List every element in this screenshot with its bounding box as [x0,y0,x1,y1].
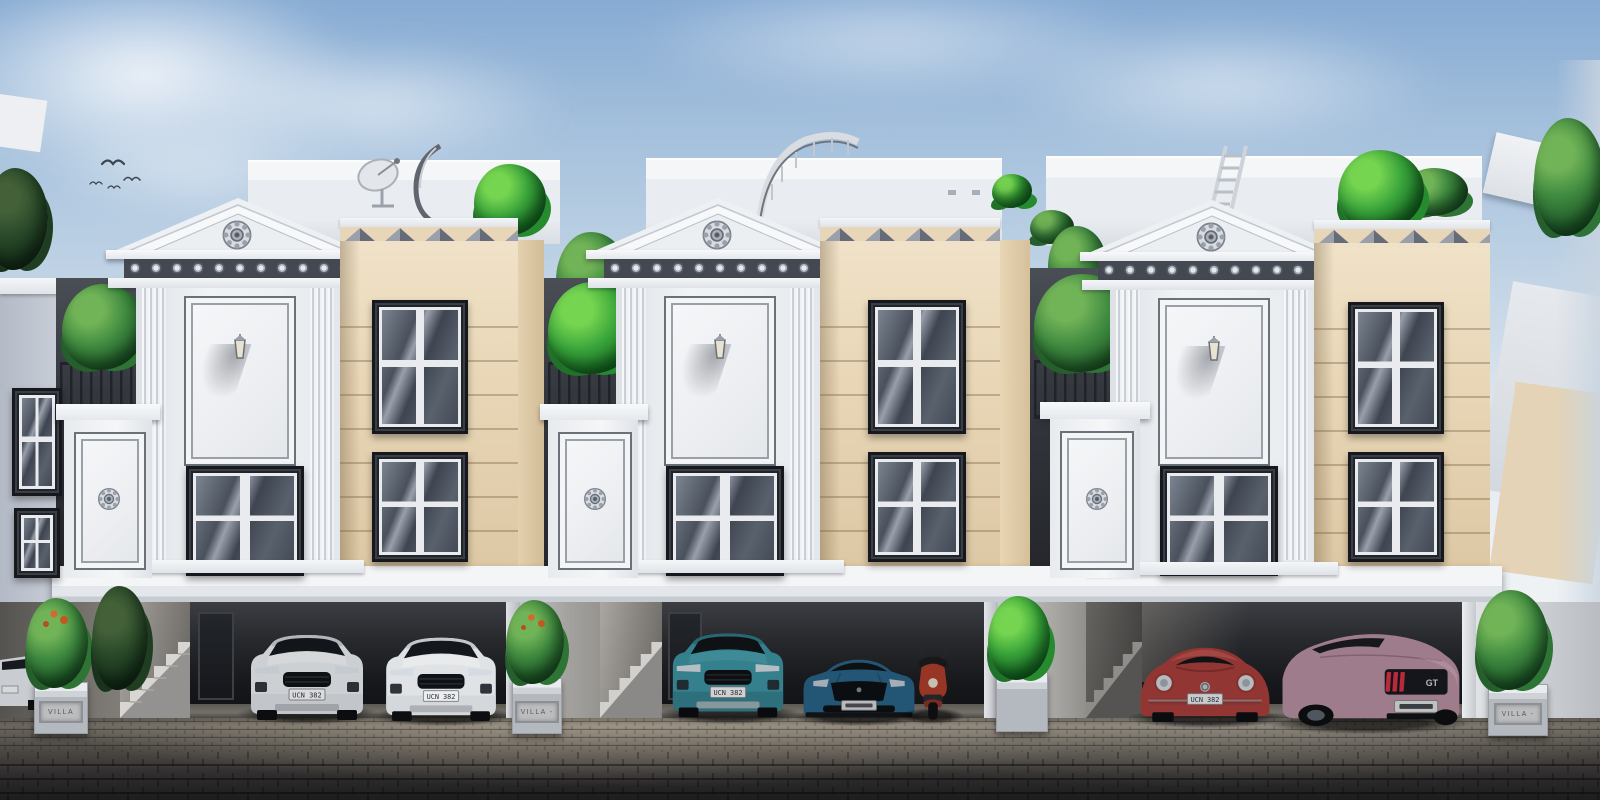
neighbor-cornice [0,278,62,294]
wing-window-lower [868,452,966,562]
license-plate: UCN 382 [1191,696,1220,704]
villa-planter: VILLA - [1488,684,1548,736]
villa-plaque-label: VILLA - [521,709,554,716]
rosette-medallion-icon [1084,486,1110,512]
villa-plaque-label: VILLA - [1502,711,1535,718]
lantern-sconce-icon [1204,334,1224,366]
side-bay-cornice [1040,402,1150,419]
side-bay-cornice [540,404,648,420]
pediment [112,198,364,254]
dentil-row [820,227,1000,241]
palm-foliage [1534,118,1600,236]
frieze-ledge [1082,280,1342,290]
window-glass [1355,459,1437,555]
villa-plaque-label: VILLA [48,709,74,716]
cornice [586,250,850,259]
window-glass [379,459,461,555]
dentil-row [1314,229,1490,243]
villa-plaque: VILLA - [1494,703,1542,725]
car-white-suv: UCN 382 [241,626,373,720]
entry-glass-door [198,612,234,700]
villa-row-render: UCN 382 UCN 382 UCN 382 [0,0,1600,800]
rosette-frieze [124,259,352,278]
window-glass [1167,473,1271,569]
villa-planter: VILLA - [512,678,562,734]
flower-blooms [48,608,60,620]
lantern-sconce-icon [230,332,250,364]
window-glass [193,473,297,569]
window-glass [875,459,959,555]
window-glass [875,307,959,427]
side-bay-cornice [56,404,160,420]
tower-window [1160,466,1278,576]
neighbor-window [14,508,60,578]
fluted-pilaster [310,288,334,560]
neighbor-roof-slab [0,92,47,152]
car-white-suv: UCN 382 [374,629,508,721]
car-teal-suv: UCN 382 [663,624,793,718]
rosette-frieze [604,259,832,278]
villa-plaque: VILLA [39,701,83,723]
wing-window-lower [1348,452,1444,562]
wing-window-upper [372,300,468,434]
cornice [106,250,370,259]
window-glass [379,307,461,427]
rosette-medallion-icon [582,486,608,512]
cornice [1080,252,1344,261]
license-plate: UCN 382 [292,692,322,700]
dentil-row [340,227,518,241]
villa-plaque: VILLA - [515,701,559,723]
car-pink-coupe-rear: GT [1268,618,1468,730]
neighbor-window [12,388,62,496]
beige-side-return [1000,240,1030,568]
window-glass [1355,309,1437,427]
parapet-coping [340,218,518,227]
lantern-sconce-icon [710,332,730,364]
carport-column [1462,602,1476,718]
rosette-frieze [1098,261,1326,280]
pediment [592,198,844,254]
roof-stair-curve [406,144,446,222]
scooter-red [906,640,960,722]
parapet-coping [1314,220,1490,229]
frieze-ledge [588,278,848,288]
wing-window-upper [868,300,966,434]
gt-badge: GT [1426,678,1439,688]
flower-blooms [526,612,537,623]
window-glass [21,515,53,571]
fluted-pilaster [790,288,814,560]
roof-vent [972,190,980,195]
wing-window-upper [1348,302,1444,434]
wing-window-lower [372,452,468,562]
rosette-medallion-icon [96,486,122,512]
villa-planter: VILLA [34,682,88,734]
birds-icon [80,150,156,202]
license-plate: UCN 382 [427,693,456,701]
car-red-beetle: UCN 382 [1130,638,1280,722]
window-glass [19,395,55,489]
license-plate: UCN 382 [714,689,743,697]
cobblestone-texture-near [0,752,1600,800]
window-glass [673,473,777,569]
cloud [1000,20,1440,150]
pediment [1086,200,1338,256]
entry-stairs [600,602,662,718]
frieze-ledge [108,278,368,288]
fluted-pilaster [1284,290,1308,560]
roof-vent [948,190,956,195]
villa-planter [996,672,1048,732]
parapet-coping [820,218,1000,227]
